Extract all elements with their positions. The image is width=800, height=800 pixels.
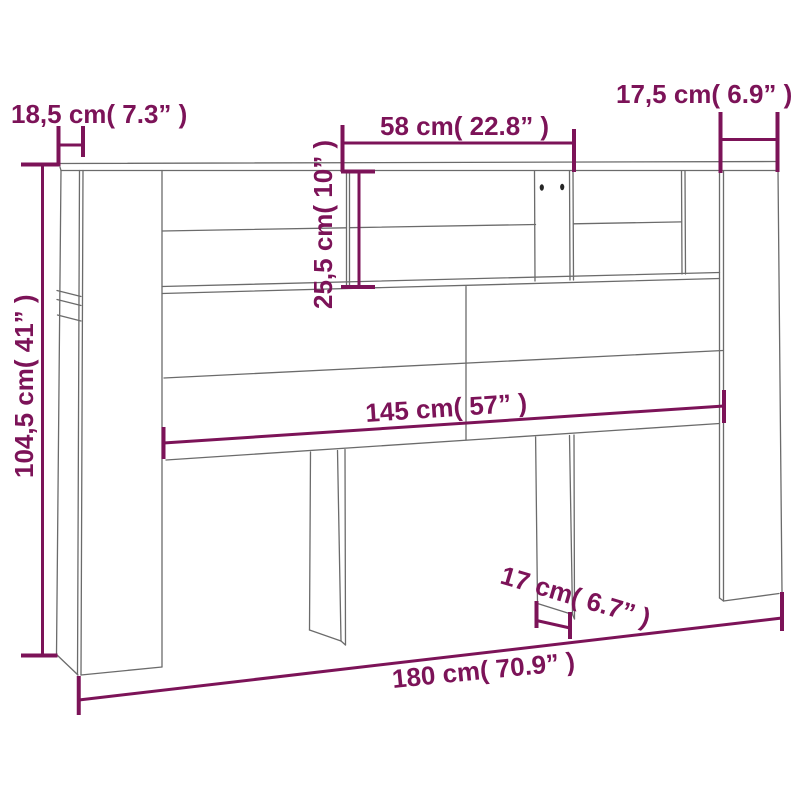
svg-text:17 cm( 6.7” ): 17 cm( 6.7” ): [497, 560, 654, 633]
svg-text:17,5 cm( 6.9” ): 17,5 cm( 6.9” ): [616, 79, 792, 109]
svg-text:18,5 cm( 7.3” ): 18,5 cm( 7.3” ): [11, 99, 187, 129]
svg-text:25,5 cm( 10” ): 25,5 cm( 10” ): [308, 140, 338, 309]
svg-text:58 cm( 22.8” ): 58 cm( 22.8” ): [380, 111, 549, 141]
svg-text:104,5 cm( 41” ): 104,5 cm( 41” ): [9, 294, 39, 478]
